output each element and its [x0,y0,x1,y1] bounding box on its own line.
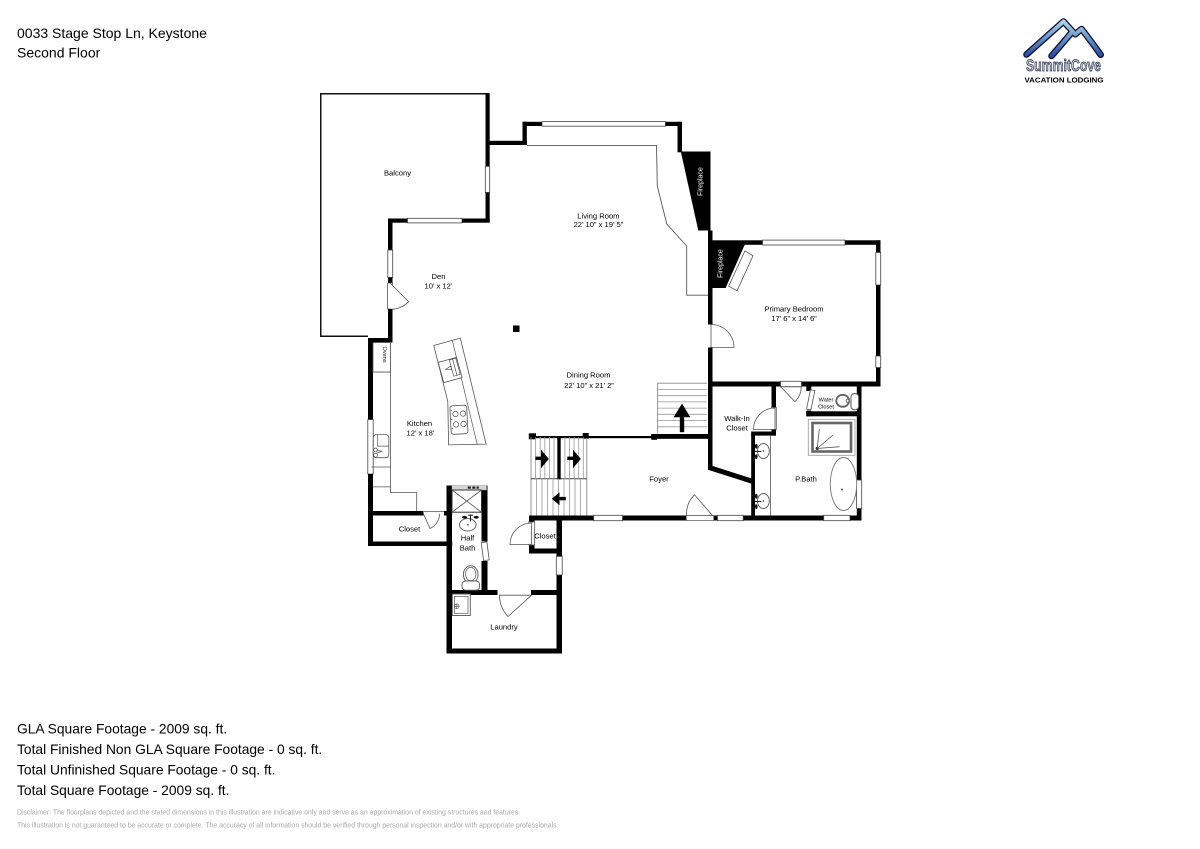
svg-text:Closet: Closet [726,424,748,433]
svg-text:GLA Square Footage - 2009 sq.: GLA Square Footage - 2009 sq. ft. [17,722,227,737]
svg-text:Primary Bedroom: Primary Bedroom [764,305,823,314]
svg-text:Balcony: Balcony [384,169,411,178]
svg-text:Fireplace: Fireplace [718,249,725,278]
svg-text:Dining Room: Dining Room [567,370,611,379]
svg-text:SummitCove: SummitCove [1026,57,1101,75]
svg-text:0033 Stage Stop Ln, Keystone: 0033 Stage Stop Ln, Keystone [17,25,207,41]
svg-text:Closet: Closet [534,532,556,541]
svg-text:Total Finished Non GLA Square: Total Finished Non GLA Square Footage - … [17,742,322,757]
svg-text:Closet: Closet [818,405,834,411]
svg-text:Laundry: Laundry [490,622,518,631]
svg-text:Water: Water [819,398,834,404]
svg-text:17’ 6” x 14’ 6”: 17’ 6” x 14’ 6” [771,314,817,323]
svg-text:Total Square Footage - 2009 sq: Total Square Footage - 2009 sq. ft. [17,783,229,798]
svg-text:22’ 10” x 19’ 5”: 22’ 10” x 19’ 5” [574,220,624,229]
svg-text:VACATION LODGING: VACATION LODGING [1025,76,1104,85]
svg-text:Half: Half [461,534,475,543]
svg-text:Disclaimer: The floorplans dep: Disclaimer: The floorplans depicted and … [17,810,520,817]
svg-text:10’ x 12’: 10’ x 12’ [424,282,452,291]
svg-text:P.Bath: P.Bath [795,475,817,484]
svg-text:Total Unfinished Square Footag: Total Unfinished Square Footage - 0 sq. … [17,763,275,778]
svg-text:Walk-In: Walk-In [724,414,749,423]
svg-text:This illustration is not guara: This illustration is not guaranteed to b… [17,823,559,830]
svg-text:Closet: Closet [399,525,421,534]
svg-text:Bath: Bath [460,544,476,553]
svg-text:Foyer: Foyer [649,474,669,483]
svg-text:12’ x 18’: 12’ x 18’ [406,429,434,438]
svg-text:Kitchen: Kitchen [407,419,432,428]
svg-text:Fireplace: Fireplace [698,167,705,196]
svg-text:Den: Den [432,272,446,281]
svg-text:Second Floor: Second Floor [17,45,101,61]
svg-text:22’ 10” x 21’ 2”: 22’ 10” x 21’ 2” [564,381,614,390]
svg-text:Ovens: Ovens [381,347,387,363]
